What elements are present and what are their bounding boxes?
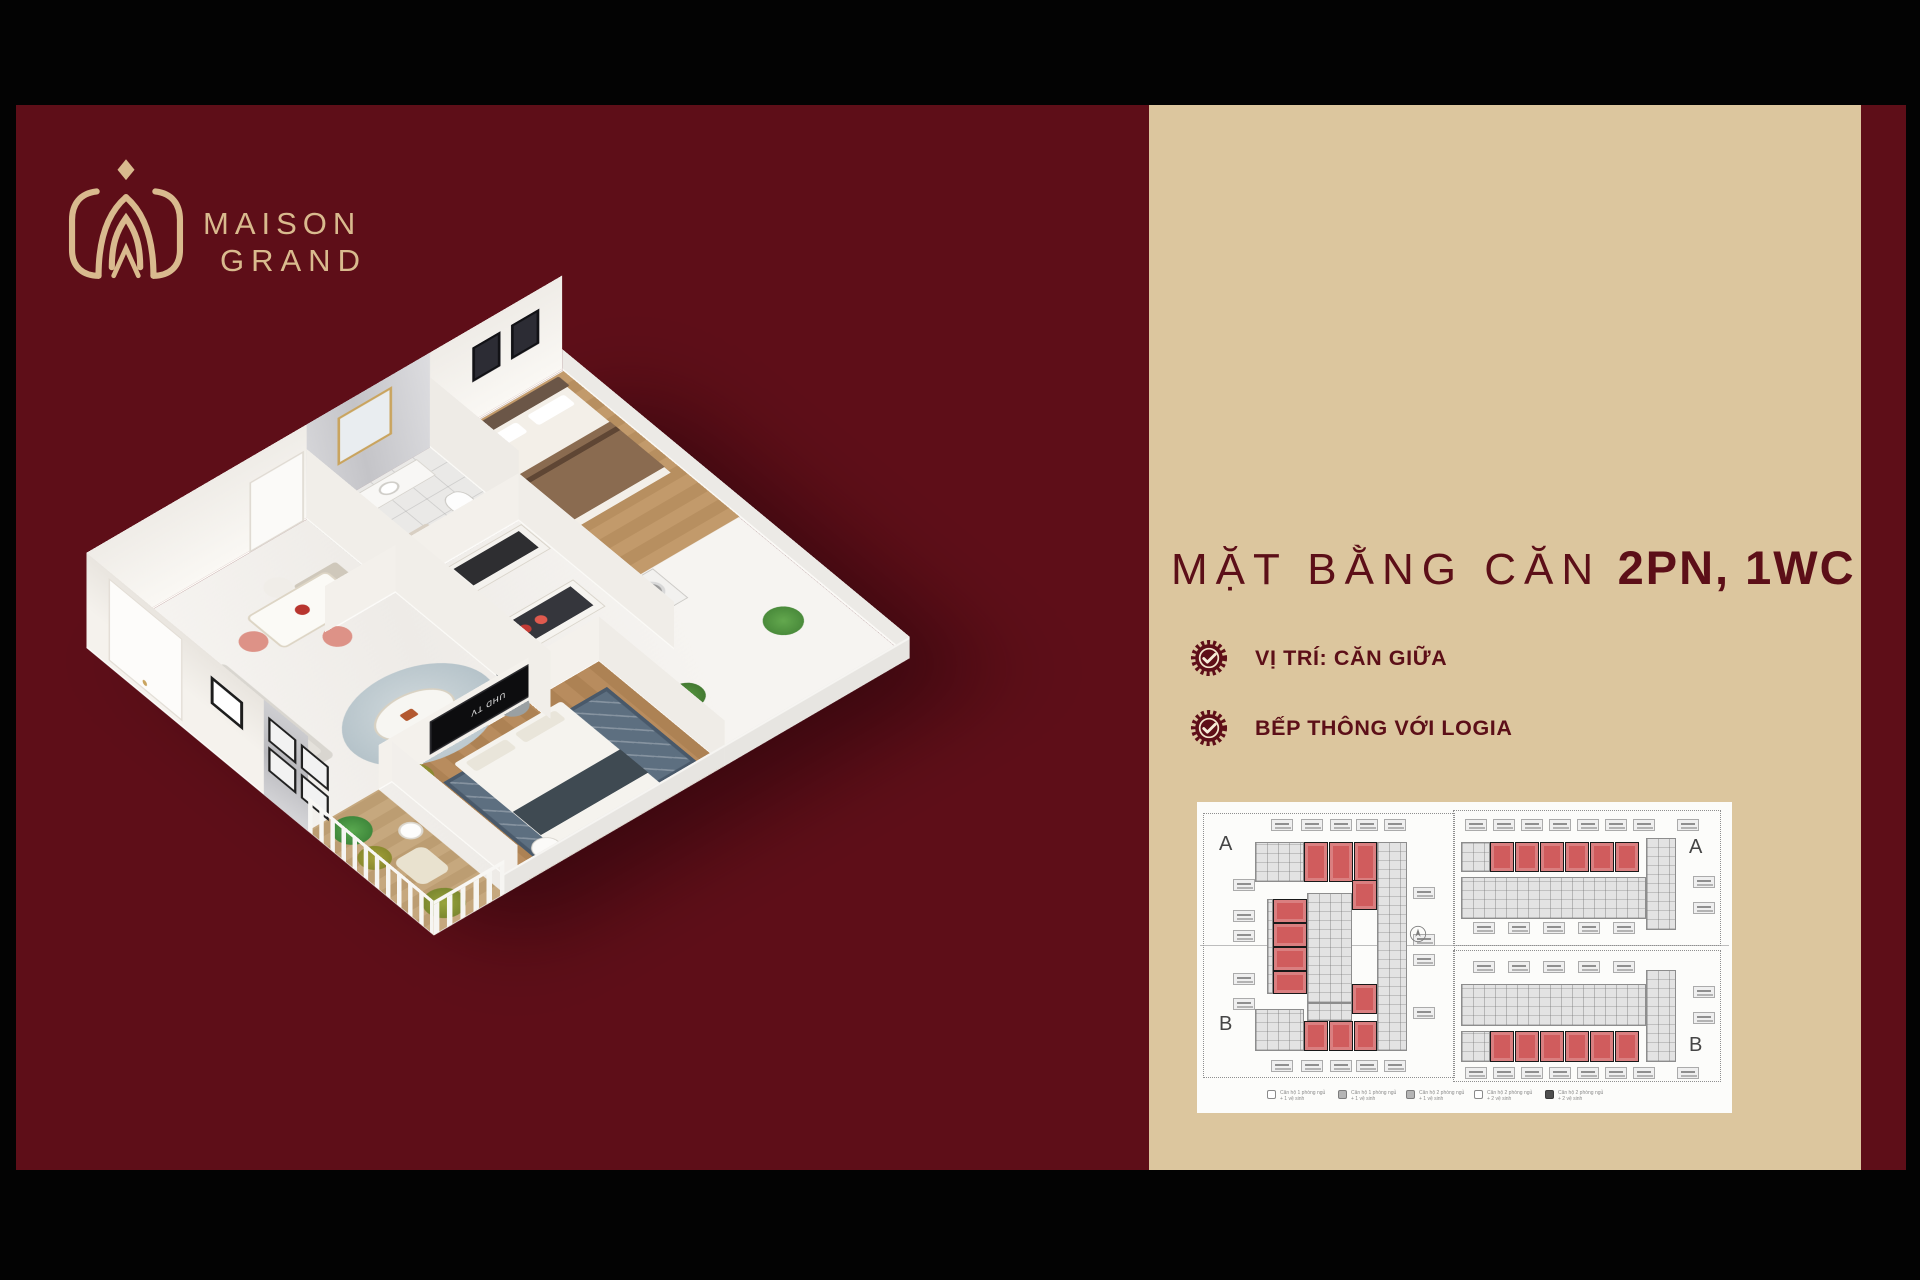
floorplan-diagram: ABABCăn hộ 1 phòng ngủ+ 1 vệ sinhCăn hộ … [1197,802,1732,1113]
highlighted-unit-2pn1wc [1515,842,1539,872]
unit-callout-label [1493,1067,1515,1079]
tower-right: AB [1453,810,1721,1082]
legend-text: Căn hộ 1 phòng ngủ+ 1 vệ sinh [1351,1090,1396,1102]
highlighted-unit-2pn1wc [1540,1031,1564,1062]
unit-callout-label [1577,819,1599,831]
legend-text: Căn hộ 2 phòng ngủ+ 1 vệ sinh [1419,1090,1464,1102]
wing-label-a: A [1219,833,1232,856]
legend-line-2: + 1 vệ sinh [1351,1096,1396,1102]
unit-callout-label [1578,922,1600,934]
unit-block-gray [1461,842,1490,872]
tower-left: AB [1203,813,1455,1078]
highlighted-unit-2pn1wc [1490,842,1514,872]
highlighted-unit-2pn1wc [1273,947,1307,971]
unit-callout-label [1465,819,1487,831]
highlighted-unit-2pn1wc [1273,899,1307,923]
unit-block-gray [1646,838,1676,930]
wing-label-b: B [1219,1013,1232,1036]
legend-swatch-dark [1545,1090,1554,1099]
iso-wrapper: UHD TV [86,370,909,935]
unit-callout-label [1693,902,1715,914]
feature-item: VỊ TRÍ: CĂN GIỮA [1190,639,1513,677]
legend-swatch-outline [1267,1090,1276,1099]
highlighted-unit-2pn1wc [1515,1031,1539,1062]
unit-block-gray [1307,1003,1352,1021]
page-title: MẶT BẰNG CĂN 2PN, 1WC [1171,540,1871,595]
feature-label: VỊ TRÍ: CĂN GIỮA [1255,646,1447,671]
legend-line-2: + 2 vệ sinh [1487,1096,1532,1102]
unit-callout-label [1330,1060,1352,1072]
highlighted-unit-2pn1wc [1352,880,1377,910]
unit-callout-label [1677,819,1699,831]
legend-swatch-outline [1474,1090,1483,1099]
legend-item: Căn hộ 2 phòng ngủ+ 2 vệ sinh [1545,1090,1603,1102]
wing-label-b: B [1689,1034,1702,1057]
highlighted-unit-2pn1wc [1354,1021,1377,1051]
unit-callout-label [1605,1067,1627,1079]
highlighted-unit-2pn1wc [1590,1031,1614,1062]
highlighted-unit-2pn1wc [1354,842,1377,882]
unit-callout-label [1693,876,1715,888]
legend-line-2: + 1 vệ sinh [1419,1096,1464,1102]
unit-callout-label [1271,1060,1293,1072]
check-badge-icon [1190,639,1228,677]
highlighted-unit-2pn1wc [1304,842,1328,882]
highlighted-unit-2pn1wc [1565,1031,1589,1062]
hallway-door [249,450,304,552]
logo-line-1: MAISON [203,206,367,242]
legend-text: Căn hộ 1 phòng ngủ+ 1 vệ sinh [1280,1090,1325,1102]
highlighted-unit-2pn1wc [1304,1021,1328,1051]
highlighted-unit-2pn1wc [1615,842,1639,872]
legend-line-2: + 2 vệ sinh [1558,1096,1603,1102]
title-light-segment: MẶT BẰNG CĂN [1171,545,1601,594]
unit-block-gray [1461,1031,1490,1062]
unit-block-gray [1377,842,1407,1051]
unit-callout-label [1549,819,1571,831]
picture-frame [211,675,244,730]
unit-callout-label [1473,922,1495,934]
feature-list: VỊ TRÍ: CĂN GIỮABẾP THÔNG VỚI LOGIA [1190,639,1513,779]
unit-callout-label [1233,879,1255,891]
unit-callout-label [1693,986,1715,998]
check-badge-icon [1190,709,1228,747]
unit-callout-label [1271,819,1293,831]
unit-callout-label [1577,1067,1599,1079]
unit-callout-label [1413,887,1435,899]
unit-block-gray [1255,842,1304,882]
unit-callout-label [1508,961,1530,973]
highlighted-unit-2pn1wc [1352,984,1377,1014]
unit-block-gray [1646,970,1676,1062]
legend-item: Căn hộ 1 phòng ngủ+ 1 vệ sinh [1267,1090,1325,1102]
unit-callout-label [1465,1067,1487,1079]
dark-picture-frame [472,331,500,382]
unit-callout-label [1473,961,1495,973]
unit-callout-label [1356,1060,1378,1072]
apartment-floor: UHD TV [86,370,909,935]
unit-callout-label [1233,910,1255,922]
legend-text: Căn hộ 2 phòng ngủ+ 2 vệ sinh [1558,1090,1603,1102]
unit-callout-label [1549,1067,1571,1079]
unit-callout-label [1413,954,1435,966]
unit-callout-label [1633,819,1655,831]
unit-callout-label [1578,961,1600,973]
slide-canvas: MAISON GRAND [0,0,1920,1280]
unit-callout-label [1301,819,1323,831]
highlighted-unit-2pn1wc [1615,1031,1639,1062]
unit-callout-label [1233,998,1255,1010]
unit-callout-label [1693,1012,1715,1024]
legend-swatch-gray [1406,1090,1415,1099]
unit-block-gray [1461,984,1646,1026]
unit-block-gray [1255,1009,1304,1051]
highlighted-unit-2pn1wc [1273,923,1307,947]
feature-item: BẾP THÔNG VỚI LOGIA [1190,709,1513,747]
highlighted-unit-2pn1wc [1273,971,1307,994]
highlighted-unit-2pn1wc [1329,842,1353,882]
tv-label: UHD TV [471,690,506,718]
legend-line-2: + 1 vệ sinh [1280,1096,1325,1102]
unit-block-gray [1461,877,1646,919]
unit-callout-label [1613,961,1635,973]
highlighted-unit-2pn1wc [1490,1031,1514,1062]
unit-callout-label [1543,922,1565,934]
legend-swatch-gray [1338,1090,1347,1099]
unit-callout-label [1677,1067,1699,1079]
highlighted-unit-2pn1wc [1565,842,1589,872]
unit-callout-label [1413,1007,1435,1019]
unit-callout-label [1508,922,1530,934]
north-arrow-icon [1409,925,1427,943]
unit-callout-label [1233,930,1255,942]
unit-callout-label [1301,1060,1323,1072]
wing-label-a: A [1689,836,1702,859]
legend-item: Căn hộ 2 phòng ngủ+ 1 vệ sinh [1406,1090,1464,1102]
unit-callout-label [1384,819,1406,831]
feature-label: BẾP THÔNG VỚI LOGIA [1255,716,1513,741]
unit-callout-label [1233,973,1255,985]
unit-callout-label [1493,819,1515,831]
highlighted-unit-2pn1wc [1540,842,1564,872]
legend-text: Căn hộ 2 phòng ngủ+ 2 vệ sinh [1487,1090,1532,1102]
unit-callout-label [1543,961,1565,973]
legend-item: Căn hộ 1 phòng ngủ+ 1 vệ sinh [1338,1090,1396,1102]
unit-callout-label [1330,819,1352,831]
unit-callout-label [1633,1067,1655,1079]
unit-callout-label [1521,1067,1543,1079]
unit-callout-label [1613,922,1635,934]
dark-picture-frame [511,308,539,359]
plant [754,600,812,641]
highlighted-unit-2pn1wc [1590,842,1614,872]
legend-item: Căn hộ 2 phòng ngủ+ 2 vệ sinh [1474,1090,1532,1102]
unit-callout-label [1605,819,1627,831]
unit-callout-label [1356,819,1378,831]
title-bold-segment: 2PN, 1WC [1618,541,1856,594]
highlighted-unit-2pn1wc [1329,1021,1353,1051]
unit-block-gray [1307,893,1352,1003]
unit-callout-label [1521,819,1543,831]
apartment-3d-render: UHD TV [88,242,908,1017]
unit-callout-label [1384,1060,1406,1072]
